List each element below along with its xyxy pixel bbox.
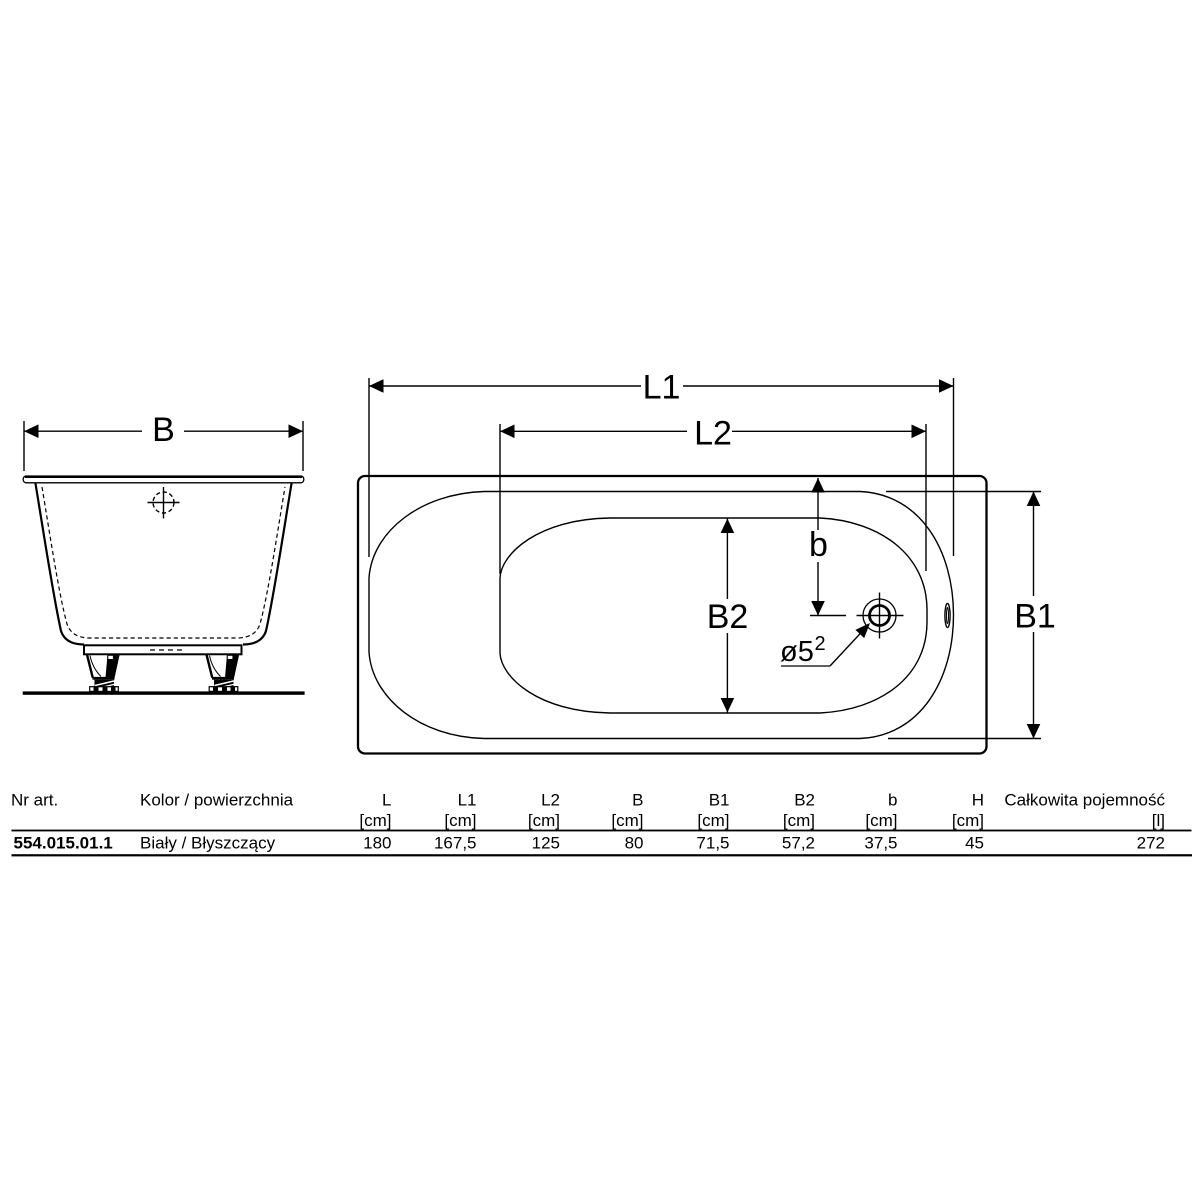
- svg-text:272: 272: [1137, 834, 1165, 853]
- svg-text:ø5: ø5: [780, 636, 814, 668]
- svg-text:45: 45: [965, 834, 984, 853]
- svg-text:L1: L1: [458, 791, 477, 810]
- svg-text:b: b: [809, 526, 828, 564]
- svg-text:Całkowita pojemność: Całkowita pojemność: [1004, 791, 1165, 810]
- svg-text:[cm]: [cm]: [611, 811, 643, 830]
- svg-text:B2: B2: [707, 598, 749, 636]
- svg-text:[cm]: [cm]: [359, 811, 391, 830]
- svg-text:125: 125: [532, 834, 560, 853]
- svg-text:L2: L2: [694, 415, 732, 453]
- svg-text:B1: B1: [1014, 598, 1056, 636]
- svg-text:37,5: 37,5: [864, 834, 897, 853]
- svg-text:B1: B1: [709, 791, 730, 810]
- svg-text:[cm]: [cm]: [528, 811, 560, 830]
- svg-text:71,5: 71,5: [696, 834, 729, 853]
- svg-text:B2: B2: [794, 791, 815, 810]
- svg-text:Biały / Błyszczący: Biały / Błyszczący: [140, 834, 276, 853]
- svg-text:B: B: [152, 411, 175, 449]
- svg-text:b: b: [888, 791, 897, 810]
- svg-text:167,5: 167,5: [434, 834, 477, 853]
- svg-text:[cm]: [cm]: [783, 811, 815, 830]
- svg-text:Kolor / powierzchnia: Kolor / powierzchnia: [140, 791, 294, 810]
- svg-text:[l]: [l]: [1152, 811, 1165, 830]
- svg-text:B: B: [632, 791, 643, 810]
- svg-text:L1: L1: [643, 369, 681, 407]
- svg-text:2: 2: [815, 633, 826, 655]
- svg-text:80: 80: [625, 834, 644, 853]
- svg-text:H: H: [972, 791, 984, 810]
- svg-text:[cm]: [cm]: [952, 811, 984, 830]
- svg-text:Nr art.: Nr art.: [11, 791, 58, 810]
- svg-text:L2: L2: [541, 791, 560, 810]
- svg-text:[cm]: [cm]: [444, 811, 476, 830]
- svg-text:L: L: [382, 791, 391, 810]
- svg-text:57,2: 57,2: [782, 834, 815, 853]
- svg-text:180: 180: [363, 834, 391, 853]
- svg-text:[cm]: [cm]: [865, 811, 897, 830]
- svg-text:554.015.01.1: 554.015.01.1: [14, 834, 113, 853]
- svg-text:[cm]: [cm]: [697, 811, 729, 830]
